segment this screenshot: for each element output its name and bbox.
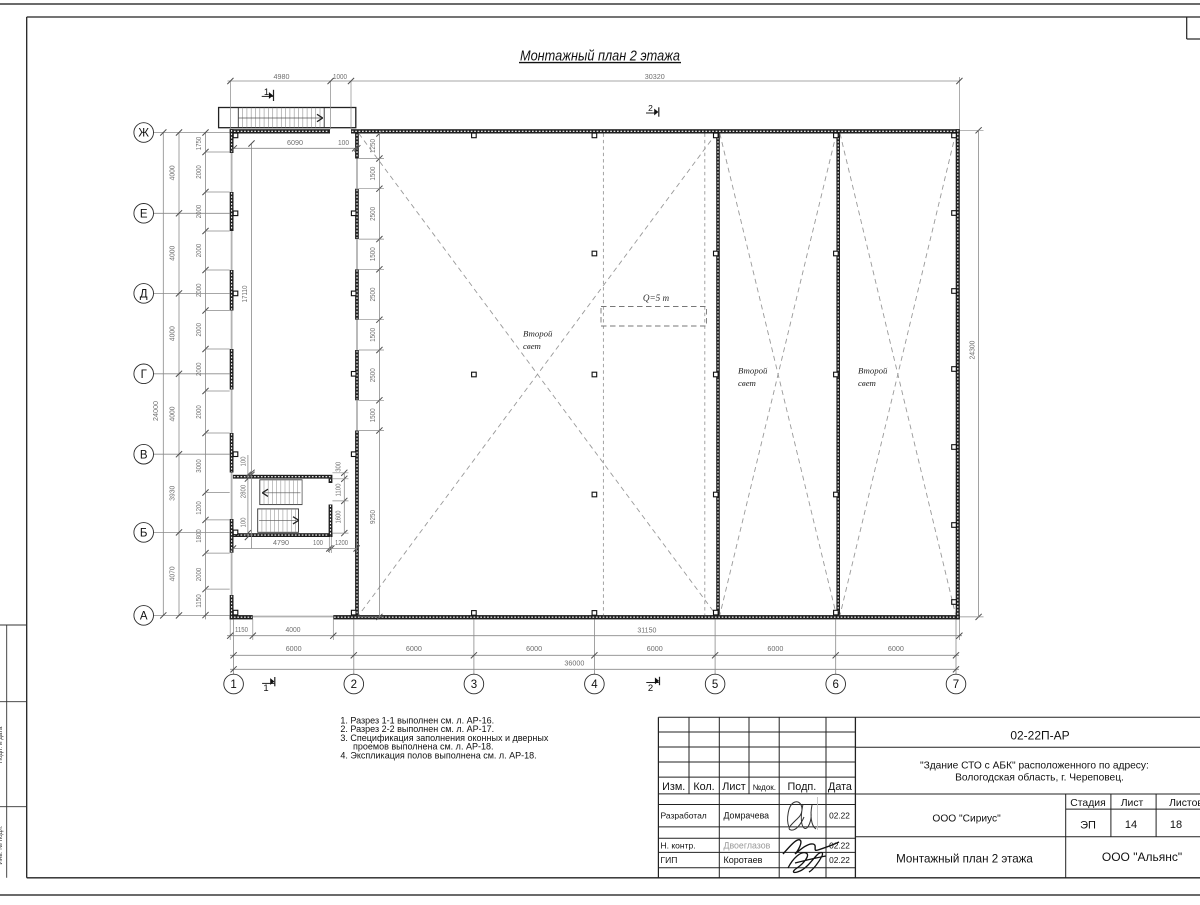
svg-text:17110: 17110: [240, 286, 249, 303]
svg-text:2000: 2000: [194, 405, 203, 419]
svg-text:24000: 24000: [151, 401, 160, 421]
svg-text:Второй: Второй: [523, 329, 553, 339]
svg-text:Г: Г: [141, 369, 148, 381]
svg-text:А: А: [140, 611, 148, 623]
svg-text:Подп. и дата: Подп. и дата: [0, 726, 4, 764]
svg-text:Е: Е: [140, 208, 148, 220]
svg-text:4000: 4000: [168, 407, 177, 422]
svg-text:6000: 6000: [286, 644, 302, 653]
svg-text:02.22: 02.22: [829, 811, 850, 821]
svg-text:Н. контр.: Н. контр.: [661, 840, 696, 850]
svg-text:6000: 6000: [406, 644, 422, 653]
svg-text:1100: 1100: [333, 484, 342, 497]
svg-text:2: 2: [648, 683, 653, 694]
svg-text:1200: 1200: [335, 538, 348, 547]
svg-text:В: В: [140, 449, 148, 461]
svg-text:100: 100: [313, 538, 323, 547]
svg-text:02.22: 02.22: [829, 855, 850, 865]
svg-text:4: 4: [591, 679, 598, 691]
svg-text:4070: 4070: [168, 566, 177, 581]
svg-text:2000: 2000: [194, 165, 203, 179]
svg-text:100: 100: [239, 518, 248, 528]
svg-text:1500: 1500: [368, 328, 377, 342]
svg-text:Вологодская область, г. Черепо: Вологодская область, г. Череповец.: [955, 772, 1124, 784]
svg-text:ООО "Сириус": ООО "Сириус": [932, 814, 1001, 825]
svg-text:2000: 2000: [194, 244, 203, 258]
svg-text:2500: 2500: [368, 368, 377, 382]
svg-text:Q=5 т: Q=5 т: [643, 293, 670, 303]
svg-text:02-22П-АР: 02-22П-АР: [1010, 729, 1069, 743]
svg-text:1: 1: [263, 683, 268, 694]
svg-text:6090: 6090: [287, 138, 303, 147]
svg-text:9250: 9250: [368, 510, 377, 524]
svg-text:Д: Д: [140, 289, 148, 301]
svg-text:4. Экспликация полов выполнена: 4. Экспликация полов выполнена см. л. АР…: [340, 750, 536, 760]
svg-text:Второй: Второй: [858, 366, 888, 376]
svg-text:1600: 1600: [333, 511, 342, 524]
svg-text:3: 3: [471, 679, 477, 691]
svg-text:31150: 31150: [637, 625, 656, 634]
svg-text:1800: 1800: [194, 529, 203, 543]
svg-text:2000: 2000: [194, 323, 203, 337]
svg-text:6: 6: [832, 679, 838, 691]
svg-text:1750: 1750: [194, 137, 203, 151]
svg-text:Инв. № подл.: Инв. № подл.: [0, 825, 4, 864]
svg-text:7: 7: [953, 679, 959, 691]
svg-text:1000: 1000: [333, 72, 347, 81]
svg-text:ООО "Альянс": ООО "Альянс": [1102, 850, 1182, 864]
svg-text:1500: 1500: [368, 408, 377, 422]
svg-text:ЭП: ЭП: [1080, 820, 1096, 832]
svg-text:Лист: Лист: [722, 781, 746, 793]
svg-text:Домрачева: Домрачева: [724, 811, 770, 821]
svg-text:2000: 2000: [194, 205, 203, 219]
svg-text:Стадия: Стадия: [1070, 798, 1105, 809]
svg-text:№док.: №док.: [753, 783, 776, 792]
svg-text:1: 1: [230, 679, 236, 691]
svg-text:Ж: Ж: [138, 128, 149, 140]
svg-text:свет: свет: [858, 378, 876, 388]
svg-text:18: 18: [1170, 819, 1182, 831]
svg-text:6000: 6000: [526, 644, 542, 653]
svg-text:Изм.: Изм.: [662, 781, 685, 793]
svg-text:Двоеглазов: Двоеглазов: [724, 840, 771, 850]
svg-text:Листов: Листов: [1169, 798, 1200, 809]
svg-text:1500: 1500: [368, 167, 377, 181]
svg-text:6000: 6000: [767, 644, 783, 653]
svg-text:2000: 2000: [194, 568, 203, 582]
svg-text:2500: 2500: [368, 207, 377, 221]
svg-text:2: 2: [351, 679, 357, 691]
svg-text:6000: 6000: [647, 644, 663, 653]
svg-text:36000: 36000: [564, 659, 584, 668]
svg-text:2500: 2500: [368, 288, 377, 302]
svg-text:30320: 30320: [645, 72, 665, 81]
svg-text:Коротаев: Коротаев: [724, 855, 763, 865]
svg-text:ГИП: ГИП: [661, 855, 678, 865]
svg-text:100: 100: [338, 138, 349, 147]
svg-text:Лист: Лист: [1121, 798, 1144, 809]
svg-text:1150: 1150: [194, 594, 203, 608]
svg-text:Разработал: Разработал: [661, 811, 707, 821]
svg-text:Монтажный план 2 этажа: Монтажный план 2 этажа: [896, 852, 1033, 865]
svg-text:4000: 4000: [168, 326, 177, 341]
svg-text:1500: 1500: [368, 247, 377, 261]
svg-text:2000: 2000: [194, 283, 203, 297]
svg-text:4000: 4000: [168, 246, 177, 261]
svg-text:6000: 6000: [888, 644, 904, 653]
svg-text:4790: 4790: [273, 538, 289, 547]
svg-text:2000: 2000: [194, 362, 203, 376]
svg-text:4000: 4000: [286, 625, 301, 634]
svg-text:Второй: Второй: [738, 366, 768, 376]
svg-text:Кол.: Кол.: [693, 781, 714, 793]
svg-text:3930: 3930: [168, 486, 177, 501]
svg-text:Подп.: Подп.: [788, 781, 817, 793]
svg-text:2800: 2800: [239, 485, 248, 499]
svg-text:24300: 24300: [967, 341, 976, 360]
svg-text:4980: 4980: [274, 72, 290, 81]
svg-text:1: 1: [264, 87, 269, 98]
svg-text:Б: Б: [140, 528, 148, 540]
svg-text:1200: 1200: [194, 501, 203, 515]
svg-text:"Здание СТО с АБК" расположенн: "Здание СТО с АБК" расположенного по адр…: [920, 761, 1149, 772]
svg-text:2: 2: [648, 103, 653, 113]
svg-text:300: 300: [333, 462, 342, 472]
svg-text:1250: 1250: [368, 139, 377, 153]
svg-text:14: 14: [1125, 819, 1137, 831]
svg-text:100: 100: [239, 457, 248, 467]
svg-text:1150: 1150: [235, 625, 248, 634]
svg-text:свет: свет: [523, 341, 541, 351]
svg-text:свет: свет: [738, 378, 756, 388]
svg-text:5: 5: [712, 679, 718, 691]
svg-text:Дата: Дата: [828, 781, 852, 793]
svg-text:3000: 3000: [194, 459, 203, 473]
svg-text:4000: 4000: [168, 165, 177, 180]
